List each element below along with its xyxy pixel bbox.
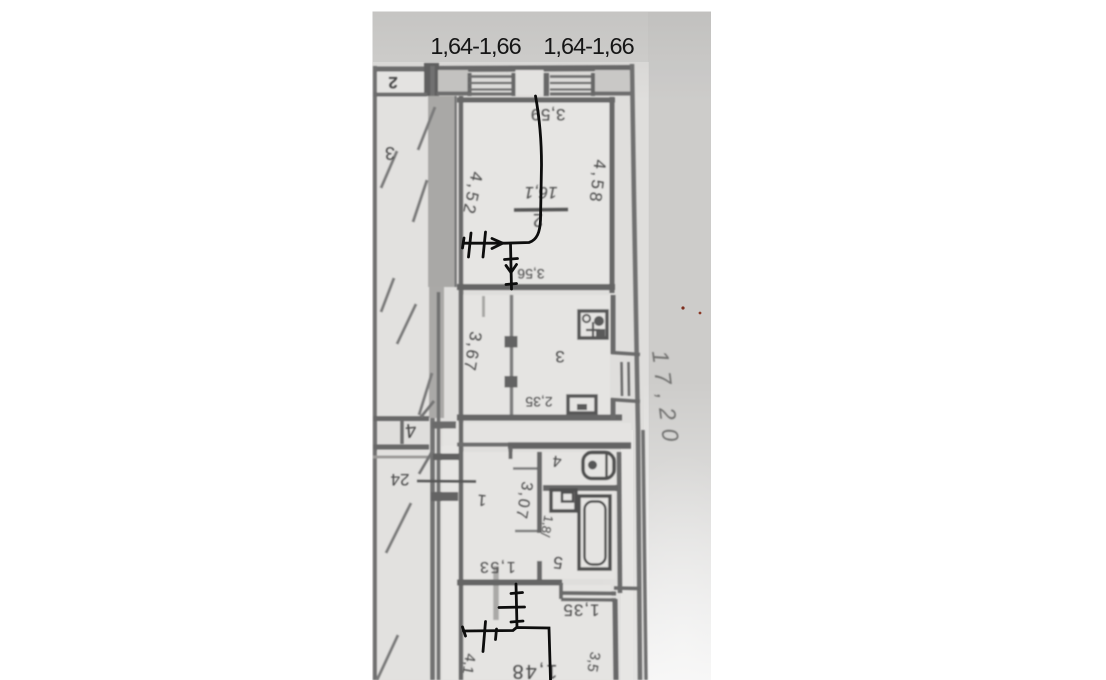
svg-text:4,1: 4,1 [458,652,478,675]
svg-text:1,64-1,66: 1,64-1,66 [430,33,521,59]
svg-text:24: 24 [391,470,410,489]
svg-text:1,64-1,66: 1,64-1,66 [543,33,634,59]
svg-text:3,56: 3,56 [517,266,544,282]
svg-text:1,53: 1,53 [478,558,515,575]
svg-text:3: 3 [555,347,564,366]
svg-text:1: 1 [477,491,487,509]
svg-text:2,35: 2,35 [525,394,552,410]
svg-text:3,59: 3,59 [530,105,565,124]
svg-text:1,35: 1,35 [562,601,599,620]
svg-text:2: 2 [388,73,397,92]
svg-text:4: 4 [404,419,417,442]
svg-text:3: 3 [385,143,395,163]
